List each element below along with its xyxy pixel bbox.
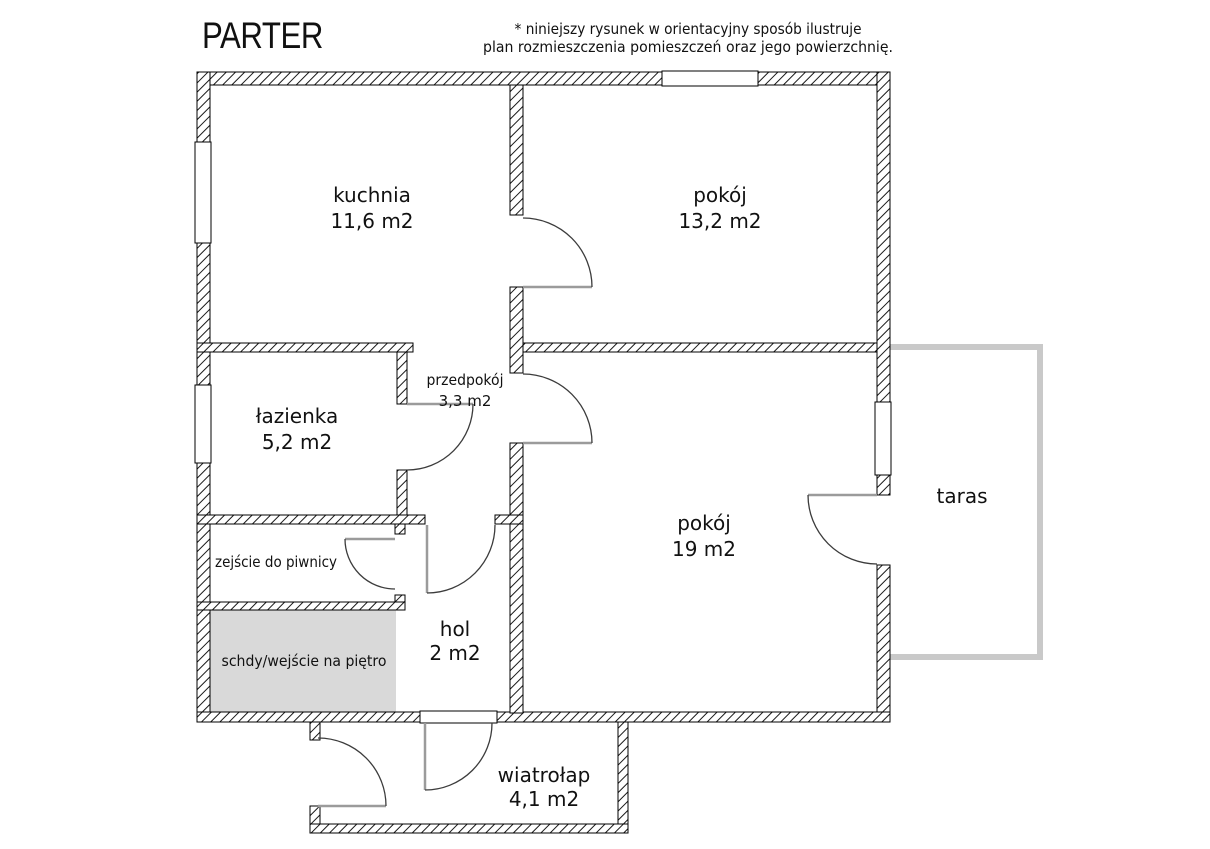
wall-segment: [197, 343, 413, 352]
disclaimer-line-2: plan rozmieszczenia pomieszczeń oraz jeg…: [483, 38, 893, 56]
room-area-lazienka: 5,2 m2: [262, 430, 332, 454]
floor-plan: PARTER * niniejszy rysunek w orientacyjn…: [0, 0, 1210, 849]
wall-segment: [395, 524, 405, 534]
wall-segment: [197, 463, 210, 722]
wall-segment: [510, 85, 523, 215]
wall-segment: [397, 352, 407, 404]
wall-segment: [497, 712, 890, 722]
wall-segment: [197, 712, 420, 722]
wall-segment: [197, 72, 662, 85]
wall-segment: [618, 722, 628, 824]
door-hallway-hall: [427, 525, 495, 593]
room-label-pokoj-gorny: pokój: [693, 183, 747, 207]
door-hall-vestibule: [425, 723, 492, 790]
room-area-wiatrolap: 4,1 m2: [509, 787, 579, 811]
room-area-pokoj-duzy: 19 m2: [672, 537, 736, 561]
wall-segment: [510, 443, 523, 713]
door-arc: [345, 539, 395, 589]
wall-segment: [523, 343, 877, 352]
wall-segment: [877, 475, 890, 495]
door-basement-exit: [345, 539, 395, 589]
wall-segment: [197, 72, 210, 142]
door-arc: [808, 495, 877, 564]
wall-segment: [197, 243, 210, 385]
room-area-przedpokoj: 3,3 m2: [439, 392, 492, 410]
room-label-hol: hol: [440, 617, 470, 641]
window-symbol: [195, 142, 211, 243]
room-label-taras: taras: [937, 484, 988, 508]
room-area-pokoj-gorny: 13,2 m2: [678, 209, 761, 233]
room-area-hol: 2 m2: [429, 641, 480, 665]
room-area-kuchnia: 11,6 m2: [330, 209, 413, 233]
wall-segment: [495, 515, 523, 524]
door-arc: [318, 738, 386, 806]
door-arc: [425, 723, 492, 790]
door-terrace: [808, 495, 877, 564]
wall-segment: [758, 72, 890, 85]
room-label-schody: schdy/wejście na piętro: [222, 652, 387, 670]
disclaimer-line-1: * niniejszy rysunek w orientacyjny sposó…: [515, 20, 862, 38]
window-symbol: [662, 71, 758, 86]
room-label-przedpokoj: przedpokój: [427, 371, 504, 389]
room-label-pokoj-duzy: pokój: [677, 511, 731, 535]
wall-segment: [877, 72, 890, 402]
door-arc: [407, 404, 473, 470]
door-kitchen-room: [523, 218, 592, 287]
door-bathroom-hallway: [407, 404, 473, 470]
door-threshold-symbol: [420, 711, 497, 723]
wall-segment: [197, 515, 425, 524]
room-label-lazienka: łazienka: [256, 404, 338, 428]
wall-segment: [397, 470, 407, 515]
door-arc: [427, 525, 495, 593]
room-label-kuchnia: kuchnia: [333, 183, 411, 207]
door-entrance: [318, 738, 386, 806]
door-arc: [523, 218, 592, 287]
wall-segment: [197, 602, 405, 610]
floor-plan-page: PARTER * niniejszy rysunek w orientacyjn…: [0, 0, 1210, 849]
room-label-wiatrolap: wiatrołap: [498, 763, 591, 787]
window-symbol: [195, 385, 211, 463]
wall-segment: [310, 824, 628, 833]
door-hallway-bigroom: [523, 374, 592, 443]
window-symbol: [875, 402, 891, 475]
page-title: PARTER: [202, 15, 323, 56]
wall-segment: [510, 287, 523, 373]
door-arc: [523, 374, 592, 443]
wall-segment: [310, 722, 320, 740]
wall-segment: [877, 565, 890, 722]
room-label-zejscie: zejście do piwnicy: [215, 553, 337, 571]
